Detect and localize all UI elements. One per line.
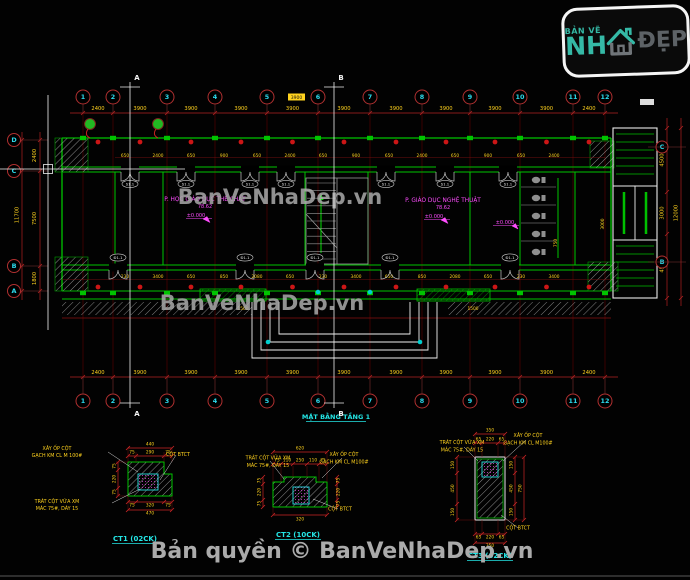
detail-label: CỘT BTCT [328, 506, 352, 513]
dim-text: 2400 [153, 153, 164, 159]
opening-tag-label: S1.1 [441, 182, 450, 187]
column-dot [138, 285, 143, 290]
wc-level: ±0.000 [496, 220, 515, 226]
dim-text: 3400 [351, 274, 362, 280]
opening-tag-label: Đ1.1 [386, 255, 396, 260]
dim-text: 3900 [184, 370, 197, 376]
opening-tag-label: S1.1 [382, 182, 391, 187]
detail-label: TRÁT CỘT VỮA XM [245, 455, 291, 462]
dim-text: 2080 [450, 274, 461, 280]
detail-label: XÂY ỐP CỘT [43, 444, 72, 452]
grid-bubble-label: 8 [420, 93, 425, 101]
dim-text: 650 [286, 274, 294, 280]
dim-text: 220 [336, 488, 342, 496]
cad-drawing-viewport: 2400240039003900390039003900390039003900… [0, 0, 690, 580]
dim-text: 3900 [389, 370, 402, 376]
misc-white-mark [640, 99, 654, 105]
detail-label: XÂY ỐP CỘT [514, 431, 543, 439]
opening-tag-label: Đ1.1 [241, 255, 251, 260]
column-marker [467, 136, 473, 140]
column-marker [367, 136, 373, 140]
column-marker [110, 291, 116, 295]
grid-bubble-label: 10 [516, 397, 525, 405]
section-letter: B [338, 410, 343, 418]
wall-south [62, 265, 611, 270]
column-dot [189, 285, 194, 290]
column-core [138, 474, 158, 490]
dim-text: 75 [129, 450, 135, 456]
grid-bubble-label: 7 [368, 93, 372, 101]
column-dot [444, 285, 449, 290]
dim-text: 2400 [91, 370, 104, 376]
column-dot [544, 140, 549, 145]
column-dot [290, 140, 295, 145]
dim-text: 3900 [337, 370, 350, 376]
column-marker [570, 136, 576, 140]
column-marker [419, 291, 425, 295]
dim-text: 650 [517, 153, 525, 159]
highlighted-dim: 3900 [291, 95, 303, 101]
grid-bubble-label: 11 [569, 93, 578, 101]
column-marker [110, 136, 116, 140]
column-dot [96, 140, 101, 145]
house-icon [604, 21, 637, 62]
room-area: 78.62 [436, 205, 450, 211]
column-marker [80, 291, 86, 295]
dim-text: 1500 [468, 306, 479, 312]
room-name: P. GIÁO DỤC NGHỆ THUẬT [405, 196, 481, 204]
dim-text: 3000 [600, 218, 606, 229]
dim-text: 650 [187, 153, 195, 159]
dim-text: 75 [336, 501, 342, 507]
dim-text: 450 [450, 484, 456, 492]
dim-text: 3900 [234, 370, 247, 376]
grid-bubble-label: 4 [213, 93, 218, 101]
section-letter: B [338, 74, 343, 82]
column-dot [587, 140, 592, 145]
column-dot [444, 140, 449, 145]
section-line [120, 82, 344, 408]
detail-label: MÁC 75#, DÀY 15 [441, 447, 483, 454]
grid-bubble-label: 6 [316, 93, 321, 101]
dim-text: 3900 [337, 106, 350, 112]
dim-text: 75 [165, 503, 171, 509]
corner-dot [266, 340, 271, 345]
dim-text: 3900 [439, 106, 452, 112]
crosshair-lines [0, 95, 185, 330]
dim-text: 3900 [133, 370, 146, 376]
column-marker [602, 136, 608, 140]
detail-label: MÁC 75#, DÀY 15 [247, 462, 289, 469]
column-dot [239, 140, 244, 145]
dim-text: 650 [121, 153, 129, 159]
dim-text: 2400 [582, 106, 595, 112]
grid-bubble-label: 2 [111, 93, 115, 101]
detail-label: GẠCH KM CL M 100# [32, 453, 83, 459]
right-staircase [613, 128, 657, 298]
opening-tag-label: Đ1.1 [506, 255, 516, 260]
corner-dot [418, 340, 423, 345]
opening-tag-label: Đ1.1 [311, 255, 321, 260]
dim-text: 75 [336, 478, 342, 484]
detail-label: TRÁT CỘT VỮA XM [34, 498, 80, 505]
dim-text: 3900 [540, 106, 553, 112]
dim-text: 3900 [133, 106, 146, 112]
grid-bubble-label: 5 [265, 93, 269, 101]
column-dot [290, 285, 295, 290]
toilet-tank [542, 231, 546, 237]
grid-bubble-label: A [12, 287, 17, 295]
opening-tag-label: S1.1 [504, 182, 513, 187]
dim-text: 3900 [439, 370, 452, 376]
dim-text: 3900 [234, 106, 247, 112]
tree-stem [86, 129, 90, 138]
dim-text: 220 [486, 437, 494, 443]
dim-text: 3900 [488, 106, 501, 112]
column-dot [239, 285, 244, 290]
column-core [293, 487, 309, 504]
dim-text: 320 [146, 503, 154, 509]
detail-label: CỘT BTCT [506, 525, 530, 532]
dim-text: 3900 [389, 106, 402, 112]
pier-hatch [55, 138, 88, 172]
dim-text: 750 [518, 484, 524, 492]
column-dot [394, 140, 399, 145]
detail-label: TRÁT CỘT VỮA XM [439, 439, 485, 446]
grid-bubble-label: 1 [81, 93, 85, 101]
column-dot [493, 140, 498, 145]
dim-text: 2400 [582, 370, 595, 376]
column-marker [467, 291, 473, 295]
toilet-icon [532, 213, 540, 219]
grid-bubble-label: 2 [111, 397, 115, 405]
column-dot [493, 285, 498, 290]
dim-text: 450 [509, 484, 515, 492]
column-marker [212, 136, 218, 140]
dim-text: 150 [509, 508, 515, 516]
dim-text: 440 [146, 442, 154, 448]
logo-name-left: NH [565, 34, 608, 58]
dim-text: 75 [257, 478, 263, 484]
room-level: ±0.000 [187, 213, 206, 219]
dim-text: 750 [553, 239, 559, 247]
dim-text: 850 [418, 274, 426, 280]
column-marker [517, 136, 523, 140]
toilet-tank [542, 177, 546, 183]
column-dot [394, 285, 399, 290]
dim-text: 650 [253, 153, 261, 159]
dim-text: 75 [112, 489, 118, 495]
section-letter: A [134, 410, 140, 418]
column-core [482, 462, 498, 477]
dim-text: 150 [509, 461, 515, 469]
site-logo: BẢN VẼ NH ĐẸP [561, 4, 690, 78]
column-marker [80, 136, 86, 140]
section-letter: A [134, 74, 140, 82]
dim-text: 11700 [15, 207, 21, 224]
opening-tag-label: Đ1.1 [114, 255, 124, 260]
dim-text: 900 [352, 153, 360, 159]
toilet-icon [532, 177, 540, 183]
dim-text: 220 [257, 488, 263, 496]
grid-bubble-label: 8 [420, 397, 425, 405]
dim-text: 650 [187, 274, 195, 280]
detail-label: CỘT BTCT [166, 451, 190, 458]
tree-stem [154, 129, 158, 138]
dim-text: 150 [450, 508, 456, 516]
grid-bubble-label: B [12, 262, 17, 270]
toilet-icon [532, 231, 540, 237]
watermark: BanVeNhaDep.vn [178, 185, 383, 209]
column-marker [570, 291, 576, 295]
dim-text: 7500 [32, 212, 38, 225]
dim-text: 900 [484, 153, 492, 159]
dim-text: 3000 [660, 206, 666, 219]
grid-bubble-label: D [11, 136, 16, 144]
dim-text: 75 [257, 501, 263, 507]
dim-text: 3900 [540, 370, 553, 376]
room-level: ±0.000 [425, 214, 444, 220]
dim-text: 75 [129, 503, 135, 509]
dim-text: 470 [146, 511, 154, 517]
grid-bubble-label: C [12, 167, 17, 175]
grid-bubble-label: 12 [601, 397, 610, 405]
building-walls [62, 138, 611, 299]
dim-text: 250 [296, 458, 304, 464]
grid-bubble-label: 4 [213, 397, 218, 405]
toilet-tank [542, 249, 546, 255]
column-marker [164, 136, 170, 140]
dimension-lines [20, 111, 683, 545]
section-lines [120, 82, 344, 408]
grid-bubble-label: 5 [265, 397, 269, 405]
dim-text: 1800 [32, 272, 38, 285]
generated-symbols: 2400240039003900390039003900390039003900… [8, 90, 687, 549]
column-dot [189, 140, 194, 145]
column-dot [138, 140, 143, 145]
dim-text: 650 [484, 274, 492, 280]
dim-text: 150 [450, 461, 456, 469]
toilet-tank [542, 195, 546, 201]
column-marker [517, 291, 523, 295]
pier-hatch [590, 141, 614, 168]
copyright-text: Bản quyền © BanVeNhaDep.vn [151, 539, 534, 564]
column-dot [342, 140, 347, 145]
stair-wing-landings [613, 186, 657, 240]
watermark: BanVeNhaDep.vn [160, 291, 365, 315]
grid-bubble-label: 12 [601, 93, 610, 101]
dim-text: 3900 [286, 106, 299, 112]
dim-text: 650 [451, 153, 459, 159]
dim-text: 650 [319, 153, 327, 159]
dim-text: 2400 [91, 106, 104, 112]
tree-icon [85, 119, 96, 130]
pier-hatch [55, 257, 88, 291]
dim-text: 3900 [184, 106, 197, 112]
detail-label: MÁC 75#, DÀY 15 [36, 505, 78, 512]
entry-platform [417, 289, 490, 301]
grid-bubble-label: 3 [165, 397, 169, 405]
grid-bubble-label: 7 [368, 397, 372, 405]
detail-label: GẠCH KM CL M100# [503, 441, 552, 447]
dim-text: 290 [146, 450, 154, 456]
toilet-icon [532, 195, 540, 201]
dim-text: 850 [220, 274, 228, 280]
dim-text: 3900 [286, 370, 299, 376]
column-marker [315, 136, 321, 140]
dim-row-rule [62, 158, 611, 280]
dim-text: 110 [309, 458, 317, 464]
column-dot [587, 285, 592, 290]
dim-text: 2400 [417, 153, 428, 159]
dim-text: 350 [486, 428, 494, 434]
dim-text: 3400 [549, 274, 560, 280]
grid-bubble-label: 11 [569, 397, 578, 405]
corner-dot [368, 290, 373, 295]
logo-text-block: BẢN VẼ NH [565, 26, 608, 58]
tree-icon [153, 119, 164, 130]
column-dot [96, 285, 101, 290]
dim-text: 620 [296, 446, 304, 452]
dim-text: 2400 [32, 149, 38, 162]
column-marker [419, 136, 425, 140]
dim-text: 320 [296, 517, 304, 523]
grid-bubble-label: 9 [468, 93, 473, 101]
column-dot [544, 285, 549, 290]
dim-text: 900 [220, 153, 228, 159]
column-marker [264, 136, 270, 140]
cad-crosshair [0, 95, 185, 330]
dim-text: 3400 [153, 274, 164, 280]
detail-label: XÂY ỐP CỘT [330, 450, 359, 458]
dim-text: 75 [112, 463, 118, 469]
dim-text: 3900 [488, 370, 501, 376]
dim-text: 12000 [674, 205, 680, 222]
grid-bubble-label: 3 [165, 93, 169, 101]
detail-label: GẠCH KM CL M100# [319, 460, 368, 466]
wall-north [62, 167, 611, 172]
grid-lines [83, 113, 605, 377]
detail-title: CT2 (10CK) [276, 531, 320, 539]
toilet-tank [542, 213, 546, 219]
column-marker [602, 291, 608, 295]
grid-bubble-label: 6 [316, 397, 321, 405]
dim-text: 2400 [549, 153, 560, 159]
dim-text: 220 [112, 475, 118, 483]
grid-bubble-label: 1 [81, 397, 85, 405]
grid-bubble-label: 10 [516, 93, 525, 101]
dim-text: 650 [385, 153, 393, 159]
floor-plan-canvas: 2400240039003900390039003900390039003900… [0, 0, 690, 580]
logo-name-right: ĐẸP [637, 26, 687, 53]
toilet-icon [532, 249, 540, 255]
dim-text: 4500 [660, 153, 666, 166]
plan-title: MẶT BẰNG TẦNG 1 [302, 411, 371, 421]
column-dot [342, 285, 347, 290]
dim-text: 2400 [285, 153, 296, 159]
grid-bubble-label: 9 [468, 397, 473, 405]
